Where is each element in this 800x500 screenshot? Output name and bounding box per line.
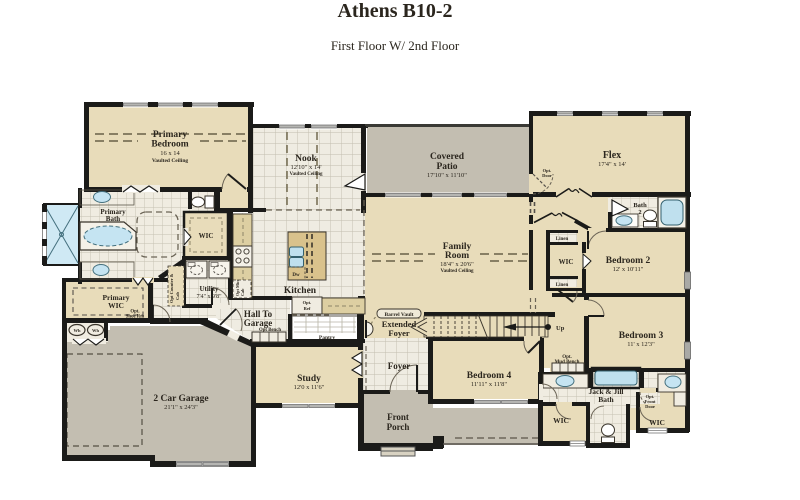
svg-text:17'10" x 11'10": 17'10" x 11'10" — [427, 172, 467, 179]
svg-text:Bedroom: Bedroom — [151, 140, 188, 150]
svg-text:WIC: WIC — [199, 232, 214, 240]
svg-text:Linen: Linen — [556, 237, 569, 242]
svg-text:Front: Front — [387, 412, 409, 422]
svg-text:21'1" x 24'3": 21'1" x 24'3" — [164, 404, 198, 411]
svg-text:7'4" x 9'8": 7'4" x 9'8" — [196, 294, 222, 300]
svg-text:Linen: Linen — [556, 283, 569, 288]
svg-text:Bath: Bath — [633, 202, 647, 209]
svg-text:Wh: Wh — [73, 328, 81, 333]
svg-text:Cab: Cab — [175, 292, 180, 300]
svg-text:Up: Up — [556, 325, 565, 332]
svg-text:Barrel Vault: Barrel Vault — [384, 312, 413, 318]
svg-text:Vaulted Ceiling: Vaulted Ceiling — [289, 172, 323, 177]
svg-text:Door: Door — [645, 404, 655, 409]
svg-text:Door: Door — [542, 173, 552, 178]
svg-text:Patio: Patio — [436, 162, 457, 172]
svg-text:Utility: Utility — [199, 285, 219, 293]
svg-text:Bedroom 2: Bedroom 2 — [606, 256, 651, 266]
svg-text:First Floor W/ 2nd Floor: First Floor W/ 2nd Floor — [331, 38, 460, 53]
svg-text:Dw: Dw — [292, 273, 300, 278]
svg-text:Opt Counter &: Opt Counter & — [169, 273, 174, 303]
svg-text:Ref: Ref — [304, 306, 311, 311]
svg-text:Cab: Cab — [240, 288, 245, 296]
svg-text:Covered: Covered — [430, 152, 465, 162]
svg-text:Vaulted Ceiling: Vaulted Ceiling — [440, 269, 474, 274]
svg-text:Bath: Bath — [598, 395, 614, 404]
svg-text:Bath: Bath — [106, 215, 121, 223]
svg-text:Shoe Rm: Shoe Rm — [126, 315, 145, 320]
svg-text:11' x 12'3": 11' x 12'3" — [627, 341, 655, 348]
svg-text:12'0 x 11'6": 12'0 x 11'6" — [294, 384, 325, 391]
svg-text:Nook: Nook — [295, 154, 317, 164]
svg-text:Pantry: Pantry — [319, 335, 335, 341]
svg-text:Foyer: Foyer — [388, 328, 409, 338]
svg-text:Study: Study — [297, 374, 321, 384]
svg-text:17'4" x 14': 17'4" x 14' — [598, 161, 626, 168]
svg-text:Flex: Flex — [603, 150, 621, 161]
svg-text:2 Car Garage: 2 Car Garage — [153, 394, 208, 404]
svg-text:Porch: Porch — [387, 422, 410, 432]
svg-text:WIC: WIC — [649, 418, 665, 427]
svg-text:Opt.: Opt. — [303, 300, 312, 305]
svg-text:2: 2 — [638, 209, 641, 216]
svg-text:Wh: Wh — [92, 328, 100, 333]
svg-text:18'4" x 20'6": 18'4" x 20'6" — [440, 261, 474, 268]
svg-text:12' x 10'11": 12' x 10'11" — [613, 266, 644, 273]
svg-text:Primary: Primary — [153, 130, 188, 140]
svg-text:Garage: Garage — [244, 318, 273, 328]
svg-text:Bedroom 4: Bedroom 4 — [467, 371, 512, 381]
svg-text:Athens B10-2: Athens B10-2 — [337, 0, 452, 22]
svg-text:16 x 14: 16 x 14 — [160, 150, 180, 157]
svg-text:WIC: WIC — [553, 416, 569, 425]
svg-text:WIC: WIC — [559, 258, 574, 266]
svg-text:WIC: WIC — [108, 301, 124, 310]
svg-text:Room: Room — [445, 251, 469, 261]
svg-text:12'10" x 14': 12'10" x 14' — [291, 164, 322, 171]
svg-text:Vaulted Ceiling: Vaulted Ceiling — [152, 158, 189, 164]
svg-text:Opt Bench: Opt Bench — [259, 328, 281, 333]
svg-text:Kitchen: Kitchen — [284, 286, 317, 296]
svg-text:Bedroom 3: Bedroom 3 — [619, 331, 664, 341]
svg-text:11'11" x 11'8": 11'11" x 11'8" — [471, 381, 508, 388]
svg-text:Foyer: Foyer — [388, 361, 411, 371]
